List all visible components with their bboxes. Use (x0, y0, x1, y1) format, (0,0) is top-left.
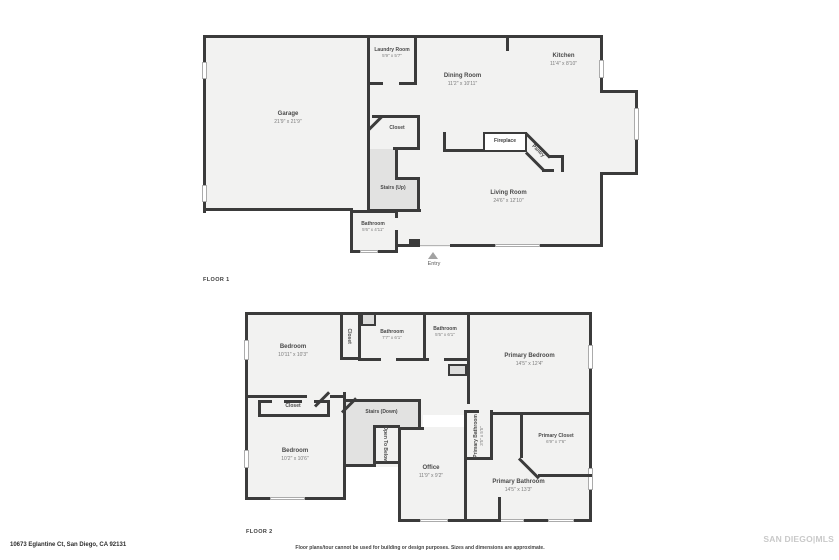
room-label-laundry: Laundry Room 5'9" x 5'7" (366, 47, 418, 59)
floor1-stairs-area (368, 149, 395, 212)
window (244, 450, 249, 468)
room-label-primary-closet: Primary Closet 6'9" x 7'6" (516, 433, 596, 445)
wall-segment (395, 230, 398, 253)
wall-segment (258, 414, 330, 417)
wall-segment (490, 410, 493, 460)
window (548, 519, 574, 522)
window (588, 345, 593, 369)
wall-segment (203, 208, 353, 211)
wall-segment (343, 464, 376, 467)
floor2-label: FLOOR 2 (246, 529, 273, 535)
wall-segment (409, 239, 420, 245)
room-label-living: Living Room 24'6" x 12'10" (466, 190, 551, 204)
room-label-primary-bedroom: Primary Bedroom 14'5" x 12'4" (477, 353, 582, 367)
room-label-closet-left: Closet (263, 403, 323, 409)
wall-segment (258, 400, 261, 417)
wall-segment (600, 90, 638, 93)
chimney-box (361, 313, 376, 326)
room-label-closet-f1: Closet (376, 125, 418, 131)
wall-segment (600, 172, 603, 247)
linen-closet-box (448, 364, 467, 376)
wall-segment (327, 400, 330, 417)
wall-segment (600, 172, 638, 175)
wall-segment (367, 209, 421, 212)
wall-segment (506, 35, 509, 51)
wall-segment (538, 474, 592, 477)
wall-segment (498, 497, 501, 522)
room-label-open-to-below: Open To Below (382, 422, 388, 466)
wall-segment (367, 130, 370, 150)
wall-segment (330, 395, 343, 398)
mls-watermark: SAN DIEGO|MLS (758, 534, 834, 544)
wall-segment (396, 358, 429, 361)
entry-label: Entry (416, 261, 452, 267)
room-label-primary-bathroom: Primary Bathroom 14'5" x 13'3" (466, 479, 571, 493)
wall-segment (450, 244, 488, 247)
room-label-bathroom1: Bathroom 7'7" x 6'1" (361, 329, 423, 341)
floor1-label: FLOOR 1 (203, 277, 230, 283)
room-label-bathroom-f1: Bathroom 5'6" x 4'11" (349, 221, 397, 233)
room-label-garage: Garage 21'9" x 21'9" (248, 111, 328, 125)
wall-segment (464, 410, 467, 522)
window (495, 244, 540, 247)
window (360, 250, 378, 253)
wall-segment (417, 115, 420, 150)
room-label-kitchen: Kitchen 11'4" x 8'10" (526, 53, 601, 67)
wall-segment (245, 395, 307, 398)
wall-segment (245, 312, 592, 315)
entry-arrow-icon (428, 252, 438, 259)
wall-segment (398, 427, 424, 430)
wall-segment (542, 169, 554, 172)
wall-segment (418, 399, 421, 427)
room-label-closet-tl: Closet (346, 321, 352, 351)
wall-segment (358, 358, 381, 361)
room-label-bathroom2: Bathroom 5'5" x 6'1" (422, 326, 468, 338)
entry-threshold (420, 245, 450, 246)
room-label-primary-bathroom-small: Primary Bathroom 3'5" x 5'5" (473, 410, 485, 462)
wall-segment (561, 155, 564, 172)
window (202, 185, 207, 202)
wall-segment (399, 82, 417, 85)
disclaimer-text: Floor plans/tour cannot be used for buil… (240, 545, 600, 551)
room-label-bedroom-tl: Bedroom 10'11" x 10'3" (253, 344, 333, 358)
room-label-bedroom-bl: Bedroom 10'2" x 10'6" (255, 448, 335, 462)
wall-segment (417, 177, 420, 212)
wall-segment (444, 358, 467, 361)
window (634, 108, 639, 140)
wall-segment (493, 412, 592, 415)
window (244, 340, 249, 360)
floor2-stairs-area (346, 428, 373, 466)
room-label-dining: Dining Room 11'2" x 10'11" (425, 73, 500, 87)
room-label-stairs-down: Stairs (Down) (345, 409, 418, 415)
window (588, 468, 593, 490)
wall-segment (414, 35, 417, 85)
wall-segment (443, 149, 485, 152)
wall-segment (367, 82, 383, 85)
room-label-stairs-up: Stairs (Up) (366, 185, 420, 191)
floorplan-page: Fireplace Pantry Garage 21'9" x 21'9" La… (0, 0, 839, 560)
room-label-office: Office 11'9" x 9'2" (398, 465, 464, 479)
window (270, 497, 305, 500)
wall-segment (589, 312, 592, 522)
floor1-kitchen-bay-area (603, 90, 638, 175)
wall-segment (340, 312, 343, 360)
wall-segment (395, 149, 398, 179)
window (202, 62, 207, 79)
wall-segment (373, 428, 376, 464)
window (498, 519, 524, 522)
window (420, 519, 448, 522)
wall-segment (203, 35, 603, 38)
property-address: 10673 Eglantine Ct, San Diego, CA 92131 (10, 542, 126, 548)
